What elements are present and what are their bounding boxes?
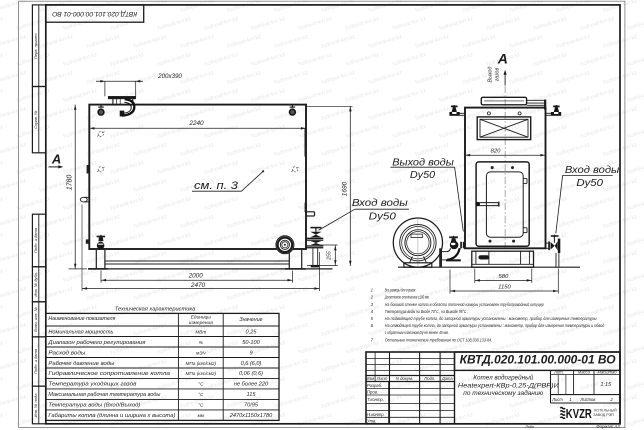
- svg-text:Перв. примен.: Перв. примен.: [33, 32, 38, 59]
- svg-text:Вход воды: Вход воды: [565, 165, 620, 176]
- svg-text:KVZR: KVZR: [566, 406, 592, 421]
- svg-text:Номинальная мощность: Номинальная мощность: [48, 329, 113, 335]
- svg-text:Подп.: Подп.: [525, 425, 534, 429]
- svg-text:1780: 1780: [66, 175, 73, 191]
- svg-text:Инв. № дубл.: Инв. № дубл.: [33, 272, 38, 297]
- svg-text:Подп.: Подп.: [424, 376, 435, 381]
- svg-text:Heatexpert-КВр-0,25-Д(РВР)И: Heatexpert-КВр-0,25-Д(РВР)И: [458, 382, 560, 389]
- svg-text:мм: мм: [198, 413, 205, 418]
- svg-text:Рабочее давление воды: Рабочее давление воды: [48, 361, 114, 367]
- svg-text:Наименование показателя: Наименование показателя: [48, 316, 115, 322]
- svg-text:Инв. № подл.: Инв. № подл.: [33, 393, 38, 418]
- svg-text:Температура воды (Вход/Выход): Температура воды (Вход/Выход): [48, 403, 140, 409]
- svg-text:°С: °С: [198, 403, 204, 408]
- svg-text:70/95: 70/95: [244, 403, 259, 409]
- svg-text:2000: 2000: [188, 273, 204, 280]
- svg-text:2470: 2470: [190, 282, 206, 289]
- svg-text:На подводящей трубе котла, д: На подводящей трубе котла, до запорной а…: [385, 316, 597, 321]
- svg-text:КОТЕЛЬНЫЙ: КОТЕЛЬНЫЙ: [594, 409, 617, 413]
- svg-text:см. п. 3: см. п. 3: [194, 180, 239, 192]
- svg-text:Максимальная рабочая температу: Максимальная рабочая температура воды: [48, 392, 160, 398]
- svg-text:Dy50: Dy50: [410, 170, 436, 181]
- svg-text:Dy50: Dy50: [576, 178, 603, 189]
- svg-text:°С: °С: [198, 392, 204, 397]
- svg-text:Подп. и дата: Подп. и дата: [33, 227, 38, 253]
- svg-text:2470х1150х1780: 2470х1150х1780: [229, 413, 273, 419]
- svg-text:Выход воды: Выход воды: [392, 157, 454, 168]
- svg-text:Остальные технические требован: Остальные технические требования по ОСТ …: [385, 338, 492, 343]
- svg-text:A: A: [497, 51, 508, 67]
- svg-text:Листов: Листов: [580, 397, 597, 402]
- svg-text:Габариты котла (длинна и ширин: Габариты котла (длинна и ширина х высота…: [48, 413, 175, 419]
- svg-text:2240: 2240: [188, 120, 204, 127]
- svg-text:Масса: Масса: [578, 370, 591, 375]
- svg-text:200х390: 200х390: [157, 73, 182, 80]
- svg-text:0,6 (6,0): 0,6 (6,0): [241, 361, 262, 367]
- svg-text:газов: газов: [495, 68, 501, 82]
- svg-text:N докум.: N докум.: [396, 376, 413, 381]
- svg-text:На боковой стенке котла в обла: На боковой стенке котла в области топочн…: [385, 302, 545, 307]
- svg-text:МПа (кгс/см2): МПа (кгс/см2): [185, 361, 216, 366]
- svg-text:Температура воды на Входе 70°: Температура воды на Входе 70°С , на Выхо…: [385, 309, 468, 314]
- svg-text:0,25: 0,25: [246, 329, 258, 335]
- svg-text:0,06 (0,6): 0,06 (0,6): [239, 371, 263, 377]
- svg-text:115: 115: [247, 392, 257, 398]
- svg-text:Т.контр.: Т.контр.: [367, 397, 384, 402]
- svg-text:МВт: МВт: [195, 329, 206, 334]
- svg-text:%: %: [199, 340, 203, 345]
- svg-text:50-100: 50-100: [242, 340, 260, 346]
- svg-text:КВТД.020.101.00.000-01 ВО: КВТД.020.101.00.000-01 ВО: [51, 10, 137, 17]
- svg-text:Утв.: Утв.: [367, 418, 377, 423]
- svg-text:Вход воды: Вход воды: [352, 198, 409, 209]
- svg-text:Значение: Значение: [239, 317, 262, 323]
- svg-text:Взам. инв. №: Взам. инв. №: [33, 306, 38, 331]
- svg-text:м3/ч: м3/ч: [196, 350, 206, 355]
- svg-text:Пров.: Пров.: [367, 390, 378, 395]
- svg-text:Лит.: Лит.: [553, 370, 564, 375]
- svg-text:Dy50: Dy50: [369, 212, 397, 223]
- svg-text:9: 9: [249, 350, 252, 356]
- svg-text:измерения: измерения: [189, 321, 213, 326]
- svg-text:Лист: Лист: [376, 376, 388, 381]
- svg-text:A: A: [51, 151, 61, 166]
- svg-text:Дата: Дата: [441, 376, 454, 381]
- svg-text:Справ. №: Справ. №: [33, 110, 38, 129]
- svg-text:по техническому заданию: по техническому заданию: [463, 389, 543, 397]
- svg-text:1:15: 1:15: [600, 382, 612, 388]
- svg-text:Диапазон рабочего регулировани: Диапазон рабочего регулирования: [47, 340, 145, 346]
- svg-text:255: 255: [326, 251, 332, 261]
- svg-text:Разраб.: Разраб.: [367, 383, 382, 388]
- svg-text:Температура уходящих газов: Температура уходящих газов: [48, 382, 136, 388]
- svg-text:Расход воды: Расход воды: [48, 350, 85, 356]
- svg-text:Подп. и дата: Подп. и дата: [33, 348, 38, 374]
- svg-text:1690: 1690: [341, 181, 348, 196]
- svg-text:580: 580: [498, 274, 509, 280]
- svg-text:Допустимое отклонение ±100 мм: Допустимое отклонение ±100 мм.: [384, 295, 429, 300]
- svg-text:Техническая характеристика: Техническая характеристика: [115, 306, 196, 312]
- svg-text:Масштаб: Масштаб: [597, 370, 617, 375]
- svg-text:°С: °С: [198, 382, 204, 387]
- svg-text:МПа (кгс/см2): МПа (кгс/см2): [185, 371, 216, 376]
- svg-text:Гидравлическое сопротивление к: Гидравлическое сопротивление котла: [48, 371, 170, 377]
- svg-text:Все размеры для справок: Все размеры для справок: [385, 288, 416, 293]
- svg-text:1150: 1150: [498, 284, 511, 290]
- svg-text:Выход: Выход: [488, 66, 494, 82]
- svg-text:1: 1: [569, 397, 571, 402]
- svg-text:820: 820: [491, 148, 502, 154]
- svg-text:Лист: Лист: [551, 397, 563, 402]
- svg-text:Н.контр.: Н.контр.: [367, 412, 385, 417]
- svg-text:не более 220: не более 220: [234, 382, 269, 388]
- svg-text:На отводящей трубе котла, до з: На отводящей трубе котла, до запорной ар…: [385, 323, 605, 328]
- svg-text:Изм: Изм: [367, 376, 375, 381]
- svg-text:Единицы: Единицы: [191, 315, 212, 321]
- svg-text:ЗАВОД РЭП: ЗАВОД РЭП: [593, 413, 614, 417]
- svg-text:с обратным клапаном Dy не мен: с обратным клапаном Dy не менее 40 мм.: [385, 330, 449, 335]
- svg-text:Котел водогрейный: Котел водогрейный: [473, 374, 533, 382]
- svg-text:КВТД.020.101.00.000-01 ВО: КВТД.020.101.00.000-01 ВО: [460, 353, 617, 367]
- svg-text:Формат А3: Формат А3: [596, 424, 620, 429]
